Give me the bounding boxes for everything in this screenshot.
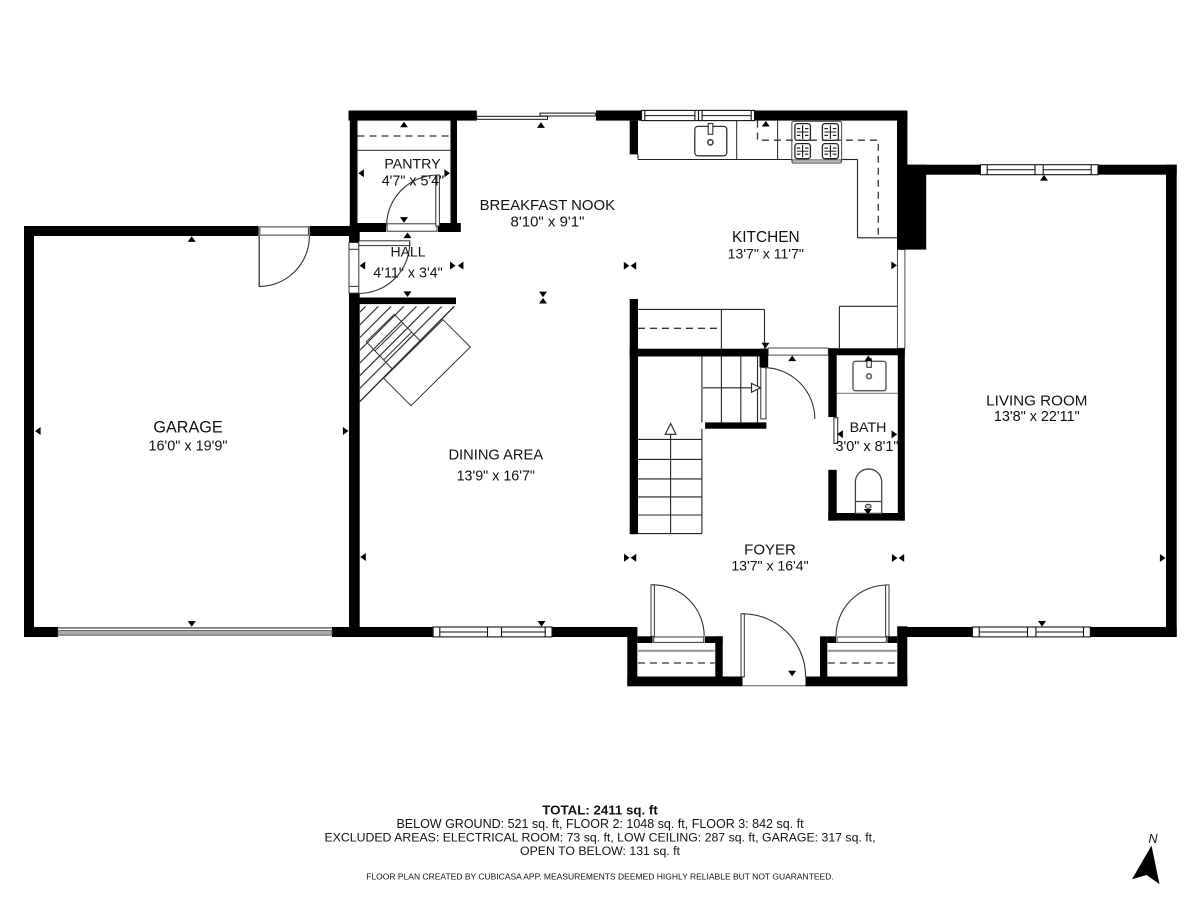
svg-text:BATH: BATH	[850, 420, 887, 436]
svg-text:13'7" x 16'4": 13'7" x 16'4"	[731, 558, 808, 574]
svg-text:4'7" x 5'4": 4'7" x 5'4"	[382, 174, 445, 190]
svg-text:FLOOR PLAN CREATED BY CUBICASA: FLOOR PLAN CREATED BY CUBICASA APP. MEAS…	[366, 871, 833, 881]
svg-text:TOTAL: 2411 sq. ft: TOTAL: 2411 sq. ft	[542, 802, 658, 817]
svg-text:13'7" x 11'7": 13'7" x 11'7"	[728, 246, 804, 262]
svg-text:KITCHEN: KITCHEN	[732, 229, 800, 246]
svg-text:FOYER: FOYER	[744, 542, 796, 559]
svg-text:N: N	[1148, 832, 1158, 846]
svg-text:BELOW GROUND: 521 sq. ft, FLOO: BELOW GROUND: 521 sq. ft, FLOOR 2: 1048 …	[396, 817, 804, 831]
svg-text:13'8" x 22'11": 13'8" x 22'11"	[994, 409, 1080, 425]
svg-text:EXCLUDED AREAS: ELECTRICAL ROO: EXCLUDED AREAS: ELECTRICAL ROOM: 73 sq. …	[324, 830, 875, 844]
svg-text:GARAGE: GARAGE	[153, 418, 222, 436]
svg-text:LIVING ROOM: LIVING ROOM	[986, 392, 1087, 409]
svg-text:PANTRY: PANTRY	[384, 157, 441, 173]
svg-text:HALL: HALL	[390, 243, 425, 259]
svg-text:16'0" x 19'9": 16'0" x 19'9"	[149, 438, 228, 454]
svg-text:3'0" x 8'1": 3'0" x 8'1"	[836, 439, 899, 455]
svg-text:8'10" x 9'1": 8'10" x 9'1"	[511, 214, 585, 231]
svg-text:13'9" x 16'7": 13'9" x 16'7"	[457, 469, 535, 485]
svg-text:4'11" x 3'4": 4'11" x 3'4"	[373, 265, 442, 281]
svg-text:BREAKFAST NOOK: BREAKFAST NOOK	[480, 198, 616, 214]
svg-text:DINING AREA: DINING AREA	[448, 448, 543, 464]
svg-text:OPEN TO BELOW: 131 sq. ft: OPEN TO BELOW: 131 sq. ft	[520, 844, 681, 858]
